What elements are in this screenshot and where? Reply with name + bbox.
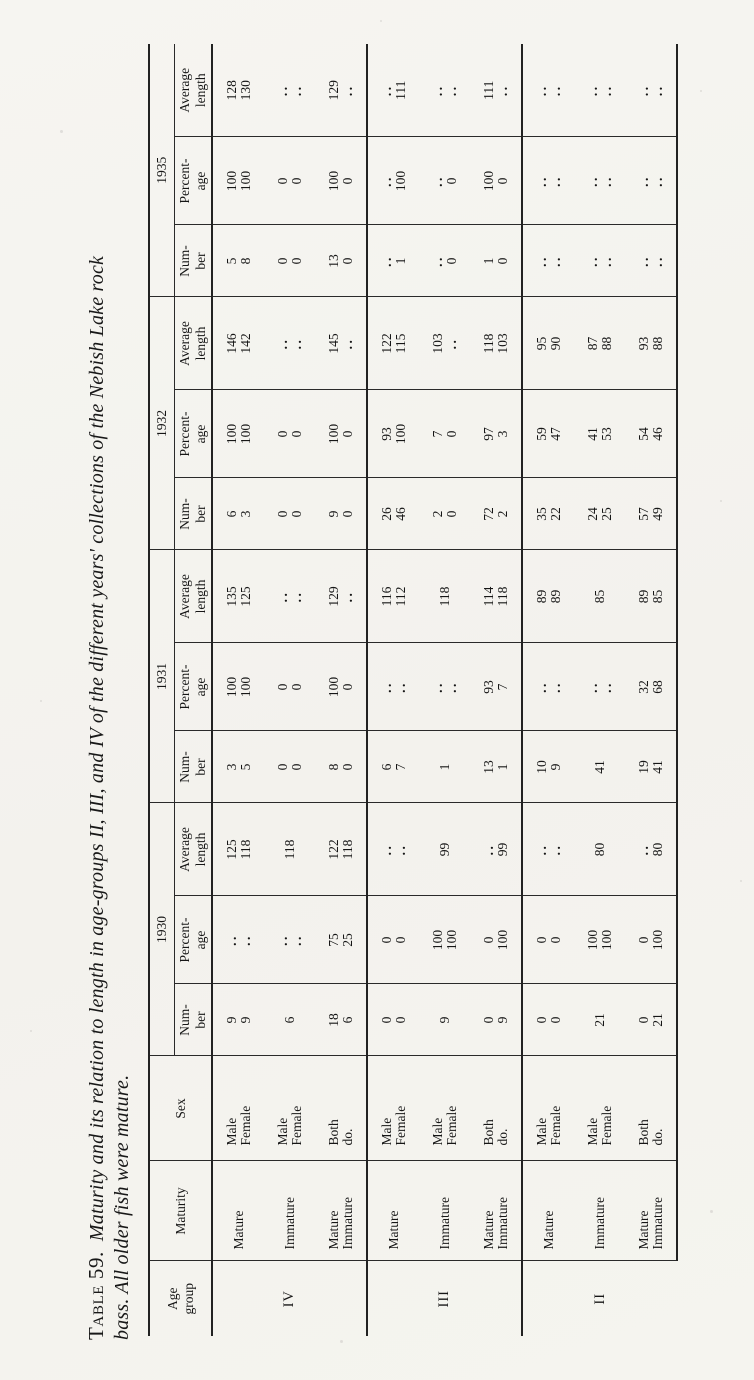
sex-line: Female: [600, 1057, 614, 1161]
table-row: IIIMatureMaleFemale0000....67....1161122…: [367, 44, 419, 1336]
scan-speck: [710, 1210, 713, 1213]
cell-1935-number: ....: [574, 225, 625, 297]
value-line: 0: [535, 897, 549, 984]
value-line: ..: [276, 44, 290, 137]
cell-1930-number: 6: [264, 984, 315, 1056]
sex-line: do.: [341, 1057, 355, 1161]
value-pair: ....: [523, 138, 574, 225]
value-line: 46: [394, 479, 408, 550]
value-pair: 67: [368, 732, 419, 803]
value-line: 1: [438, 732, 452, 803]
value-pair: 131: [470, 732, 521, 803]
value-line: 0: [276, 391, 290, 478]
scan-speck: [90, 260, 92, 262]
value-pair: 58: [213, 226, 264, 297]
header-average-length-line: Average: [177, 551, 193, 643]
value-line: 93: [482, 644, 496, 731]
value-line: 100: [600, 897, 614, 984]
value-line: 0: [394, 897, 408, 984]
value-pair: 118103: [470, 298, 521, 390]
header-average-length-line: length: [193, 804, 209, 896]
value-line: 118: [283, 804, 297, 896]
value-line: 103: [496, 298, 510, 390]
header-number-line: Num-: [177, 732, 193, 803]
value-pair: 80: [574, 804, 625, 896]
value-line: 2: [431, 479, 445, 550]
value-line: 89: [549, 551, 563, 643]
value-pair: 5446: [625, 391, 676, 478]
scanned-page: Table 59.Maturity and its relation to le…: [0, 0, 754, 1380]
value-line: ..: [276, 897, 290, 984]
cell-1931-number: 35: [212, 731, 264, 803]
cell-1931-average-length: 129..: [315, 550, 367, 643]
maturity-line: Mature: [387, 1162, 401, 1261]
header-average-length-line: length: [193, 44, 209, 137]
value-pair: 118: [264, 804, 315, 896]
value-pair: 80: [315, 732, 366, 803]
maturity-pair: Immature: [264, 1162, 315, 1261]
value-line: 118: [482, 298, 496, 390]
sex-line: Male: [380, 1057, 394, 1161]
value-line: 100: [394, 391, 408, 478]
value-pair: 116112: [368, 551, 419, 643]
header-sex-line: Sex: [173, 1057, 189, 1161]
cell-1935-percentage: ..100: [367, 137, 419, 225]
header-1932-percentage: Percent-age: [175, 390, 213, 478]
value-line: 100: [496, 897, 510, 984]
cell-1932-average-length: 103..: [419, 297, 470, 390]
cell-1932-percentage: 973: [470, 390, 522, 478]
sex-line: Male: [586, 1057, 600, 1161]
value-line: ..: [431, 138, 445, 225]
scan-speck: [340, 1340, 343, 1343]
value-line: ..: [586, 226, 600, 297]
cell-1931-average-length: 135125: [212, 550, 264, 643]
value-line: 5: [239, 732, 253, 803]
value-line: 88: [600, 298, 614, 390]
cell-1932-average-length: 9590: [522, 297, 574, 390]
value-line: 26: [380, 479, 394, 550]
value-line: 97: [482, 391, 496, 478]
value-pair: 100100: [213, 391, 264, 478]
value-pair: 00: [264, 479, 315, 550]
cell-1930-percentage: 100100: [574, 896, 625, 984]
value-pair: 100100: [419, 897, 470, 984]
value-line: 0: [496, 138, 510, 225]
value-line: 9: [549, 732, 563, 803]
table-row: IIMatureMaleFemale0000....109....8989352…: [522, 44, 574, 1336]
value-line: 100: [225, 138, 239, 225]
age-group-III: IIIMatureMaleFemale0000....67....1161122…: [367, 44, 522, 1336]
value-line: ..: [549, 644, 563, 731]
value-pair: ....: [523, 226, 574, 297]
value-line: 0: [290, 226, 304, 297]
value-line: ..: [341, 551, 355, 643]
sex-line: Female: [394, 1057, 408, 1161]
value-pair: 114118: [470, 551, 521, 643]
value-line: 0: [445, 479, 459, 550]
value-pair: 128130: [213, 44, 264, 137]
maturity-pair: Immature: [419, 1162, 470, 1261]
header-percentage-line: Percent-: [177, 391, 193, 478]
header-percentage-line: age: [193, 644, 209, 731]
cell-1931-average-length: 8985: [625, 550, 677, 643]
value-line: ..: [394, 644, 408, 731]
value-line: 103: [431, 298, 445, 390]
value-pair: 125118: [213, 804, 264, 896]
cell-1932-average-length: 146142: [212, 297, 264, 390]
header-number-line: ber: [193, 732, 209, 803]
cell-1935-percentage: 100100: [212, 137, 264, 225]
cell-1935-percentage: 1000: [470, 137, 522, 225]
maturity-line: Immature: [651, 1162, 665, 1261]
cell-1931-number: 41: [574, 731, 625, 803]
value-line: 0: [535, 985, 549, 1056]
value-line: ..: [431, 44, 445, 137]
value-line: 100: [651, 897, 665, 984]
value-line: ..: [651, 138, 665, 225]
cell-1935-average-length: 111..: [470, 44, 522, 137]
cell-1930-number: 00: [522, 984, 574, 1056]
value-pair: 146142: [213, 298, 264, 390]
value-line: 9: [239, 985, 253, 1056]
cell-1932-percentage: 100100: [212, 390, 264, 478]
value-line: 19: [637, 732, 651, 803]
value-line: 100: [225, 391, 239, 478]
table-row: ImmatureMaleFemale6....1180000....0000..…: [264, 44, 315, 1336]
cell-1930-average-length: 122118: [315, 803, 367, 896]
value-line: ..: [276, 551, 290, 643]
maturity-pair: Mature: [368, 1162, 419, 1261]
value-pair: 122118: [315, 804, 366, 896]
table-row: MatureImmatureBothdo.1867525122118801000…: [315, 44, 367, 1336]
value-line: 41: [651, 732, 665, 803]
value-line: ..: [341, 44, 355, 137]
maturity-line: Mature: [542, 1162, 556, 1261]
cell-1935-number: 130: [315, 225, 367, 297]
cell-1930-number: 021: [625, 984, 677, 1056]
header-year-1935: 1935: [149, 44, 175, 297]
value-line: 90: [549, 298, 563, 390]
value-line: 116: [380, 551, 394, 643]
value-pair: ....: [419, 44, 470, 137]
sex-cell: MaleFemale: [522, 1056, 574, 1161]
cell-1935-average-length: ....: [625, 44, 677, 137]
value-pair: 109: [523, 732, 574, 803]
value-pair: 9: [419, 985, 470, 1056]
scan-speck: [30, 1030, 32, 1032]
value-pair: 00: [523, 897, 574, 984]
value-line: 0: [637, 985, 651, 1056]
value-line: ..: [431, 226, 445, 297]
value-line: 46: [651, 391, 665, 478]
value-pair: 8985: [625, 551, 676, 643]
header-age-group-line: group: [181, 1262, 197, 1337]
scan-speck: [380, 20, 382, 22]
value-line: 1: [394, 226, 408, 297]
value-line: 59: [535, 391, 549, 478]
value-pair: 5947: [523, 391, 574, 478]
value-pair: ....: [625, 138, 676, 225]
value-line: ..: [535, 138, 549, 225]
sex-line: Male: [431, 1057, 445, 1161]
value-line: ..: [535, 44, 549, 137]
cell-1935-percentage: ....: [574, 137, 625, 225]
value-pair: 145..: [315, 298, 366, 390]
table-title-line2: bass. All older fish were mature.: [110, 5, 135, 1340]
cell-1935-average-length: ....: [264, 44, 315, 137]
value-line: 8: [239, 226, 253, 297]
table-title-line1: Table 59.Maturity and its relation to le…: [84, 5, 110, 1340]
value-pair: ..100: [368, 138, 419, 225]
cell-1932-percentage: 00: [264, 390, 315, 478]
cell-1932-average-length: 8788: [574, 297, 625, 390]
table-row: IVMatureMaleFemale99....1251183510010013…: [212, 44, 264, 1336]
value-pair: 100100: [213, 644, 264, 731]
maturity-line: Mature: [327, 1162, 341, 1261]
cell-1930-number: 99: [212, 984, 264, 1056]
header-percentage-line: Percent-: [177, 897, 193, 984]
maturity-line: Immature: [496, 1162, 510, 1261]
value-pair: ....: [264, 897, 315, 984]
header-1930-average-length: Averagelength: [175, 803, 213, 896]
value-pair: 5749: [625, 479, 676, 550]
value-pair: 2425: [574, 479, 625, 550]
cell-1931-percentage: 100100: [212, 643, 264, 731]
value-pair: ....: [523, 44, 574, 137]
age-group-IV: IVMatureMaleFemale99....1251183510010013…: [212, 44, 367, 1336]
header-1932-number: Num-ber: [175, 478, 213, 550]
cell-1932-number: 00: [264, 478, 315, 550]
header-percentage-line: Percent-: [177, 644, 193, 731]
value-line: 25: [600, 479, 614, 550]
maturity-cell: Mature: [212, 1161, 264, 1261]
cell-1935-number: ..0: [419, 225, 470, 297]
cell-1931-percentage: 00: [264, 643, 315, 731]
cell-1935-number: 10: [470, 225, 522, 297]
header-maturity-line: Maturity: [173, 1162, 189, 1261]
cell-1931-average-length: 114118: [470, 550, 522, 643]
value-pair: ..0: [419, 138, 470, 225]
header-year-1931: 1931: [149, 550, 175, 803]
value-line: ..: [276, 298, 290, 390]
maturity-line: Mature: [232, 1162, 246, 1261]
header-sex: Sex: [149, 1056, 212, 1161]
value-line: 100: [394, 138, 408, 225]
table-row: MatureImmatureBothdo.0210100..8019413268…: [625, 44, 677, 1336]
value-line: 0: [276, 479, 290, 550]
value-line: 13: [482, 732, 496, 803]
header-average-length-line: length: [193, 298, 209, 390]
value-line: ..: [380, 226, 394, 297]
value-line: ..: [549, 804, 563, 896]
sex-cell: MaleFemale: [367, 1056, 419, 1161]
value-line: ..: [535, 644, 549, 731]
value-pair: 3522: [523, 479, 574, 550]
maturity-line: Immature: [438, 1162, 452, 1261]
value-pair: ....: [523, 804, 574, 896]
table-title-text: Maturity and its relation to length in a…: [86, 256, 108, 1241]
cell-1935-percentage: ..0: [419, 137, 470, 225]
value-line: ..: [637, 138, 651, 225]
header-average-length-line: length: [193, 551, 209, 643]
value-pair: 70: [419, 391, 470, 478]
value-line: 7: [394, 732, 408, 803]
value-pair: ....: [368, 804, 419, 896]
value-line: ..: [535, 226, 549, 297]
cell-1935-number: ....: [625, 225, 677, 297]
header-year-1930: 1930: [149, 803, 175, 1056]
value-pair: 85: [574, 551, 625, 643]
value-line: 6: [225, 479, 239, 550]
value-line: ..: [394, 804, 408, 896]
value-line: 88: [651, 298, 665, 390]
sex-line: Both: [637, 1057, 651, 1161]
value-pair: 0100: [470, 897, 521, 984]
header-average-length-line: Average: [177, 804, 193, 896]
cell-1930-average-length: 80: [574, 803, 625, 896]
value-pair: 8788: [574, 298, 625, 390]
value-line: ..: [290, 551, 304, 643]
value-line: 100: [431, 897, 445, 984]
sex-pair: MaleFemale: [574, 1057, 625, 1161]
sex-pair: MaleFemale: [419, 1057, 470, 1161]
value-pair: 00: [264, 732, 315, 803]
value-line: 9: [225, 985, 239, 1056]
value-line: 0: [637, 897, 651, 984]
maturity-pair: Mature: [213, 1162, 264, 1261]
maturity-pair: MatureImmature: [315, 1162, 366, 1261]
value-pair: ....: [264, 551, 315, 643]
value-line: ..: [535, 804, 549, 896]
cell-1935-percentage: ....: [625, 137, 677, 225]
sex-line: Male: [276, 1057, 290, 1161]
table-row: MatureImmatureBothdo.090100..99131937114…: [470, 44, 522, 1336]
value-line: 100: [239, 138, 253, 225]
cell-1932-number: 2646: [367, 478, 419, 550]
value-line: 0: [276, 138, 290, 225]
cell-1935-average-length: 129..: [315, 44, 367, 137]
value-line: 87: [586, 298, 600, 390]
value-line: 118: [496, 551, 510, 643]
cell-1932-number: 20: [419, 478, 470, 550]
table-head: AgegroupMaturitySex1930193119321935Num-b…: [149, 44, 212, 1336]
value-pair: 20: [419, 479, 470, 550]
value-line: 0: [482, 985, 496, 1056]
value-pair: ....: [574, 644, 625, 731]
header-percentage-line: age: [193, 138, 209, 225]
value-line: 89: [535, 551, 549, 643]
table-title: Table 59.Maturity and its relation to le…: [84, 5, 135, 1340]
value-line: 100: [327, 391, 341, 478]
value-line: 1: [496, 732, 510, 803]
value-line: 0: [482, 897, 496, 984]
value-pair: ....: [213, 897, 264, 984]
value-line: 0: [276, 226, 290, 297]
value-line: 3: [225, 732, 239, 803]
value-line: 118: [438, 551, 452, 643]
value-pair: 9388: [625, 298, 676, 390]
sex-line: Female: [290, 1057, 304, 1161]
table-row: ImmatureMaleFemale211001008041....852425…: [574, 44, 625, 1336]
header-number-line: ber: [193, 479, 209, 550]
maturity-line: Immature: [283, 1162, 297, 1261]
value-pair: 21: [574, 985, 625, 1056]
value-line: ..: [637, 226, 651, 297]
value-line: 99: [496, 804, 510, 896]
value-line: ..: [445, 44, 459, 137]
header-1932-average-length: Averagelength: [175, 297, 213, 390]
value-line: 118: [239, 804, 253, 896]
value-line: ..: [290, 298, 304, 390]
cell-1932-percentage: 5446: [625, 390, 677, 478]
value-line: ..: [549, 138, 563, 225]
value-line: 10: [535, 732, 549, 803]
value-line: ..: [600, 44, 614, 137]
value-line: 41: [586, 391, 600, 478]
header-age-group-line: Age: [165, 1262, 181, 1337]
sex-pair: Bothdo.: [315, 1057, 366, 1161]
value-line: 145: [327, 298, 341, 390]
value-line: ..: [586, 138, 600, 225]
cell-1931-average-length: 8989: [522, 550, 574, 643]
value-line: 0: [445, 138, 459, 225]
value-line: 68: [651, 644, 665, 731]
value-pair: ....: [264, 44, 315, 137]
scan-speck: [40, 700, 42, 702]
value-line: 100: [586, 897, 600, 984]
value-line: 7: [431, 391, 445, 478]
cell-1935-average-length: ..111: [367, 44, 419, 137]
value-pair: 09: [470, 985, 521, 1056]
maturity-cell: Mature: [522, 1161, 574, 1261]
value-line: ..: [380, 644, 394, 731]
value-pair: ....: [574, 138, 625, 225]
table-row: ImmatureMaleFemale9100100991....11820701…: [419, 44, 470, 1336]
value-line: 7: [496, 644, 510, 731]
value-line: 0: [290, 644, 304, 731]
data-table: AgegroupMaturitySex1930193119321935Num-b…: [148, 44, 678, 1336]
cell-1930-number: 9: [419, 984, 470, 1056]
value-line: 142: [239, 298, 253, 390]
sex-line: Female: [549, 1057, 563, 1161]
value-line: ..: [600, 226, 614, 297]
value-line: 135: [225, 551, 239, 643]
value-line: 0: [496, 226, 510, 297]
value-pair: 00: [264, 226, 315, 297]
value-line: 49: [651, 479, 665, 550]
value-pair: 41: [574, 732, 625, 803]
value-pair: 1000: [315, 644, 366, 731]
value-line: 0: [549, 985, 563, 1056]
value-line: 0: [380, 985, 394, 1056]
sex-line: Female: [239, 1057, 253, 1161]
value-pair: ....: [574, 44, 625, 137]
value-line: 100: [239, 391, 253, 478]
sex-pair: MaleFemale: [264, 1057, 315, 1161]
value-line: 0: [394, 985, 408, 1056]
value-line: 0: [341, 644, 355, 731]
cell-1931-average-length: 118: [419, 550, 470, 643]
value-line: 9: [327, 479, 341, 550]
value-pair: 1: [419, 732, 470, 803]
value-line: 53: [600, 391, 614, 478]
value-line: 111: [394, 44, 408, 137]
value-line: 100: [482, 138, 496, 225]
value-pair: 130: [315, 226, 366, 297]
value-pair: 4153: [574, 391, 625, 478]
value-line: 122: [327, 804, 341, 896]
